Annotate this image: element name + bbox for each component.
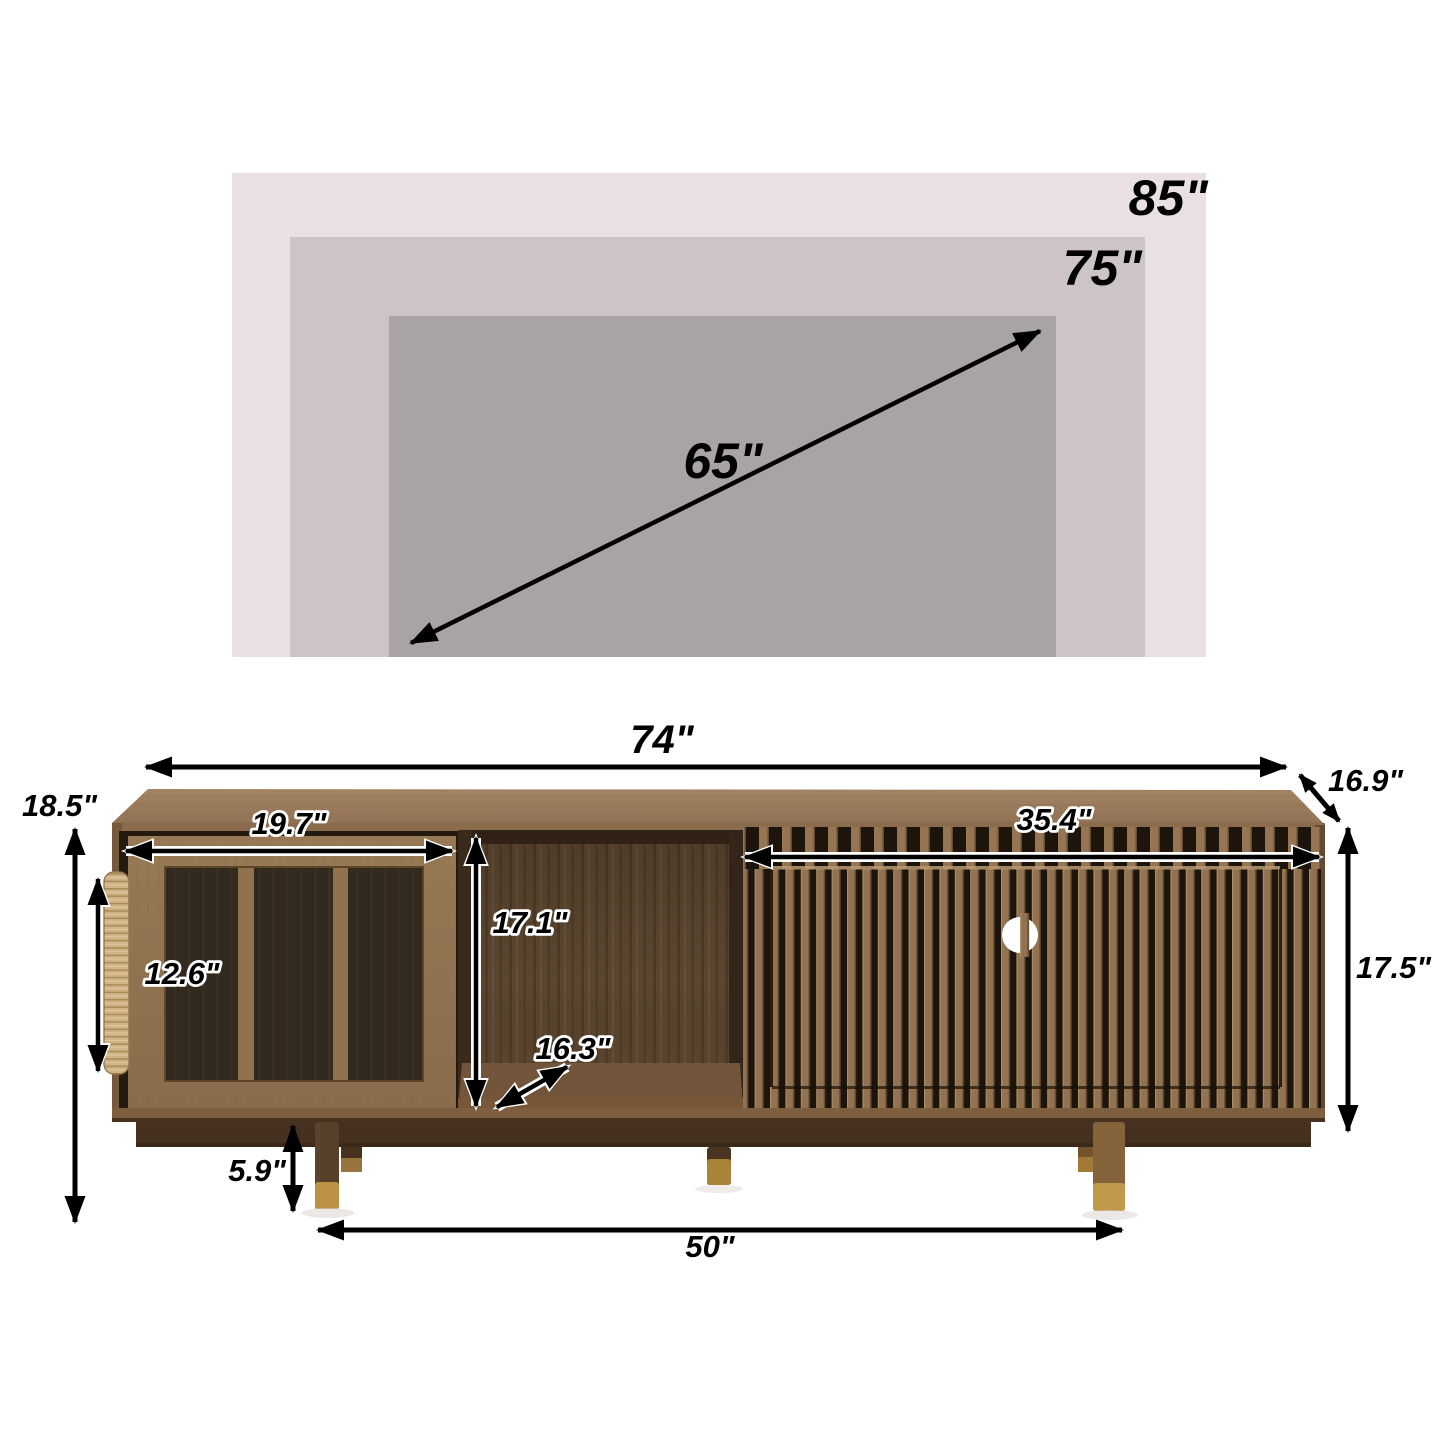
svg-text:50": 50" [685, 1229, 735, 1264]
svg-text:5.9": 5.9" [228, 1153, 287, 1188]
svg-text:35.4": 35.4" [1016, 802, 1092, 837]
svg-text:16.9": 16.9" [1328, 763, 1404, 798]
svg-text:12.6": 12.6" [144, 956, 220, 991]
svg-text:19.7": 19.7" [251, 806, 327, 841]
svg-text:65": 65" [683, 433, 764, 489]
svg-text:16.3": 16.3" [535, 1031, 611, 1066]
svg-text:17.5": 17.5" [1356, 950, 1432, 985]
svg-text:74": 74" [630, 718, 694, 762]
svg-text:75": 75" [1063, 240, 1144, 296]
svg-text:85": 85" [1129, 170, 1210, 226]
svg-text:17.1": 17.1" [492, 905, 568, 940]
svg-text:18.5": 18.5" [22, 788, 98, 823]
